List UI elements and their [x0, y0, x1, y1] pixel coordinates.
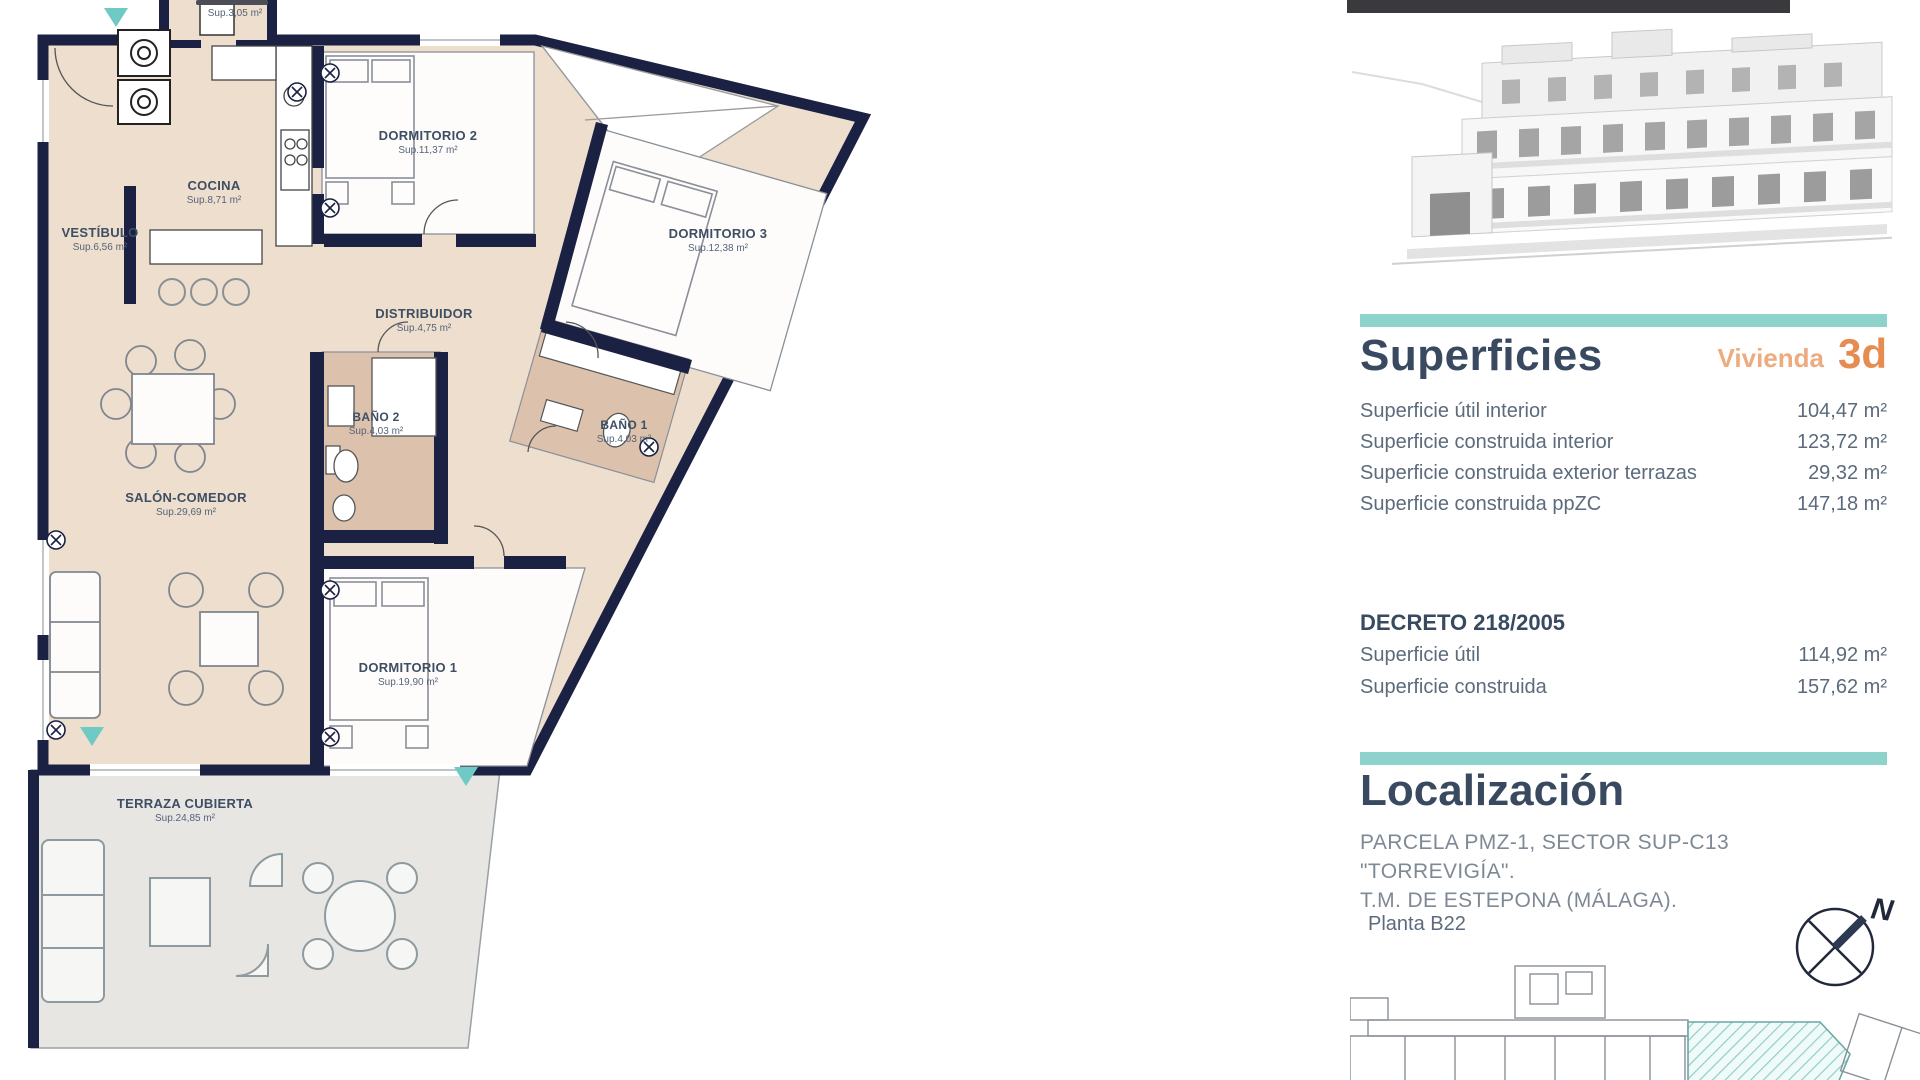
- brochure-page: Sup.3,05 m² DORMITORIO 2 Sup.11,37 m² CO…: [0, 0, 1920, 1080]
- localizacion-line1: PARCELA PMZ-1, SECTOR SUP-C13 "TORREVIGÍ…: [1360, 828, 1887, 886]
- laundry-appliances: [118, 30, 170, 124]
- superficies-title: Superficies: [1360, 331, 1603, 381]
- building-render-image: [1352, 24, 1897, 292]
- table-row: Superficie construida ppZC 147,18 m²: [1360, 493, 1887, 524]
- localizacion-title: Localización: [1360, 766, 1624, 816]
- terraza-area: [28, 770, 500, 1048]
- superficies-table: Superficie útil interior 104,47 m² Super…: [1360, 400, 1887, 524]
- vivienda-label: Vivienda: [1718, 343, 1824, 378]
- decreto-table: Superficie útil 114,92 m² Superficie con…: [1360, 644, 1887, 708]
- planta-label: Planta B22: [1368, 913, 1466, 936]
- table-row: Superficie construida 157,62 m²: [1360, 676, 1887, 708]
- table-row: Superficie útil interior 104,47 m²: [1360, 400, 1887, 431]
- section-accent-bar: [1360, 752, 1887, 765]
- table-row: Superficie construida exterior terrazas …: [1360, 462, 1887, 493]
- unit-identifier: Vivienda 3d: [1718, 330, 1887, 381]
- vivienda-code: 3d: [1838, 330, 1887, 378]
- clipped-room-name: [196, 0, 268, 5]
- section-accent-bar: [1360, 314, 1887, 327]
- north-label: N: [1869, 892, 1896, 928]
- floor-plan-drawing: [0, 0, 980, 1080]
- sofa: [50, 572, 100, 718]
- table-row: Superficie construida interior 123,72 m²: [1360, 431, 1887, 462]
- table-row: Superficie útil 114,92 m²: [1360, 644, 1887, 676]
- decreto-title: DECRETO 218/2005: [1360, 610, 1565, 636]
- cropped-photo-strip: [1347, 0, 1790, 13]
- key-plan-drawing: [1350, 958, 1920, 1080]
- clipped-room-sup: Sup.3,05 m²: [165, 8, 305, 19]
